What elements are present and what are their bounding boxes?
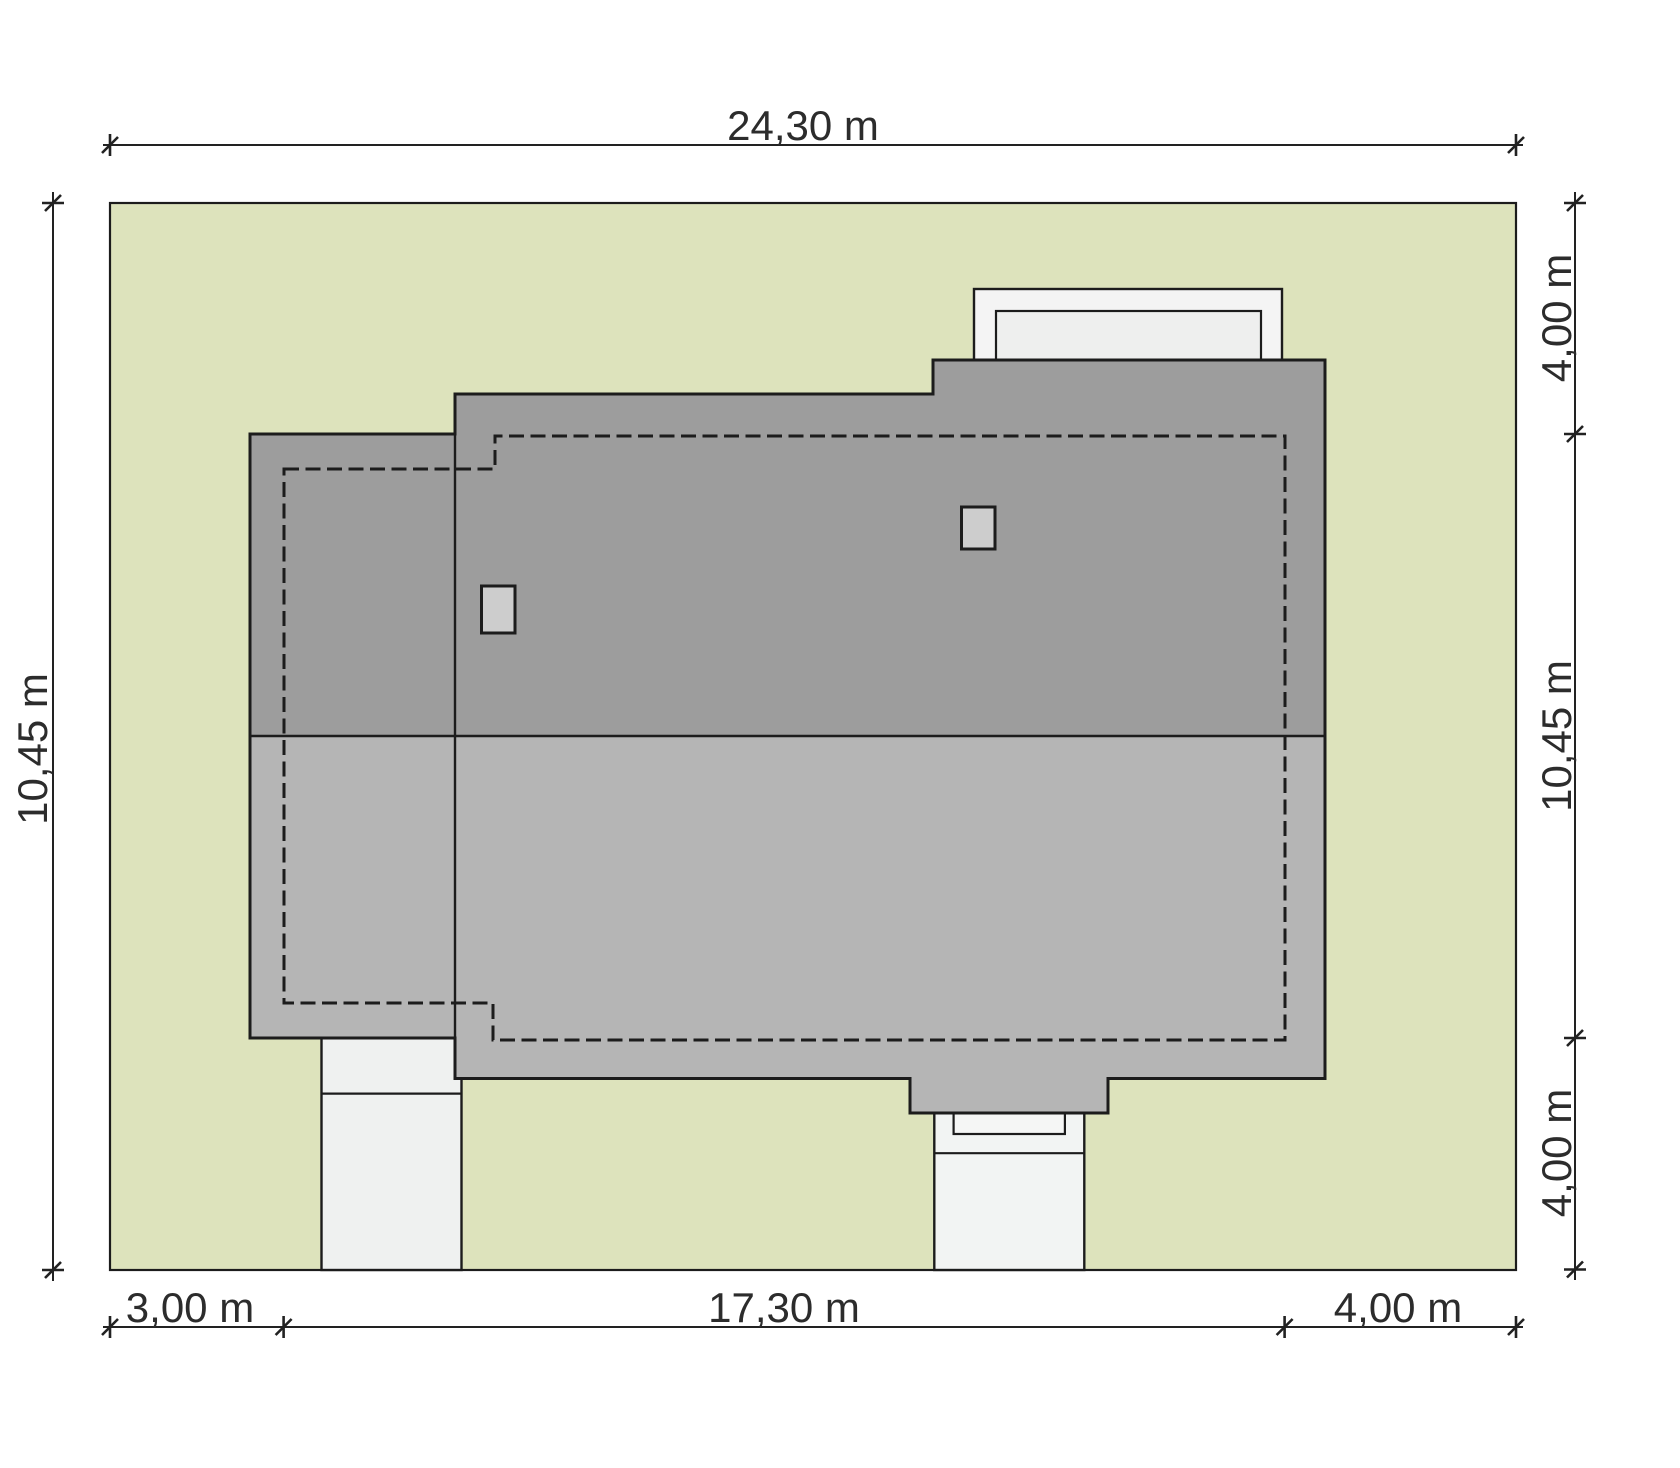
svg-text:4,00 m: 4,00 m <box>1533 1089 1580 1217</box>
svg-text:10,45 m: 10,45 m <box>9 673 56 825</box>
svg-text:4,00 m: 4,00 m <box>1533 254 1580 382</box>
svg-text:4,00 m: 4,00 m <box>1334 1284 1462 1331</box>
svg-text:10,45 m: 10,45 m <box>1533 660 1580 812</box>
svg-text:17,30 m: 17,30 m <box>708 1284 860 1331</box>
svg-text:24,30 m: 24,30 m <box>727 102 879 149</box>
svg-text:3,00 m: 3,00 m <box>126 1284 254 1331</box>
